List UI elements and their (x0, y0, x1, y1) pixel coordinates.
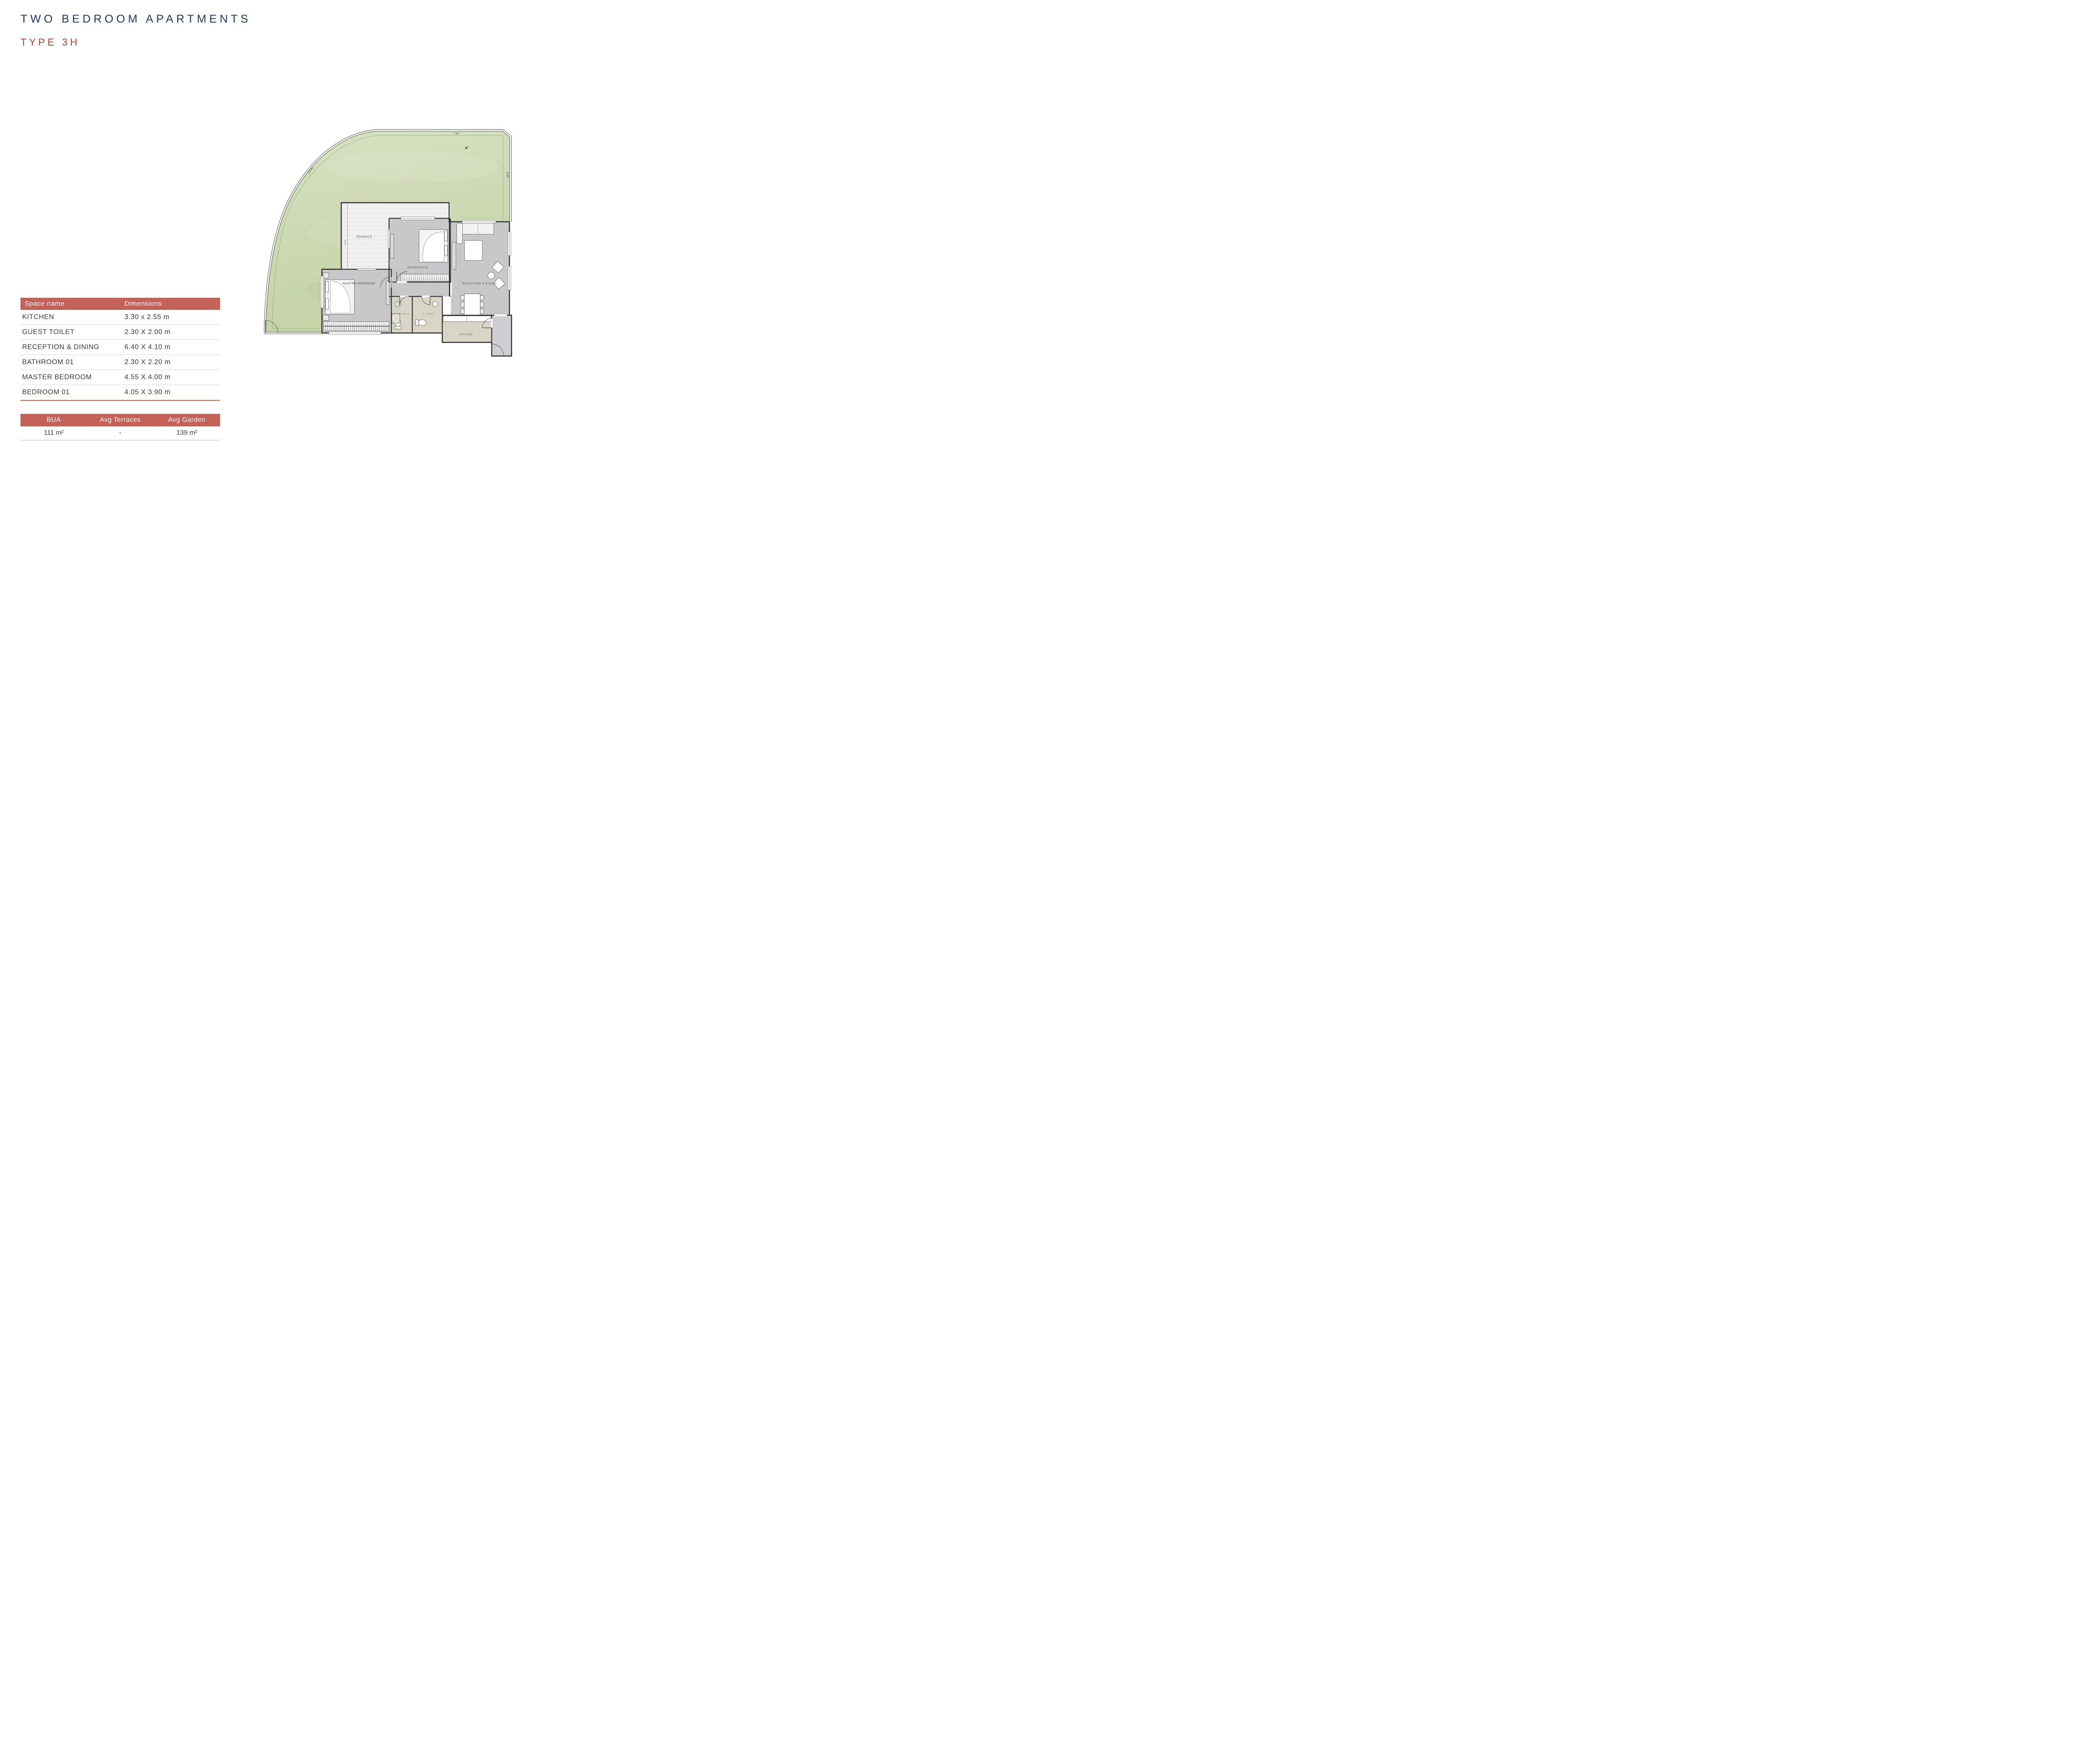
kitchen-counter (443, 316, 491, 322)
header-avg-garden: Avg Garden (154, 416, 220, 424)
table-row: BATHROOM 01 2.30 X 2.20 m (20, 355, 220, 370)
space-name-cell: BEDROOM 01 (20, 388, 124, 396)
space-name-cell: BATHROOM 01 (20, 358, 124, 366)
garden-top-dimension: 7.10 (454, 132, 459, 135)
space-name-cell: RECEPTION & DINING (20, 343, 124, 351)
master-nightstand (323, 315, 329, 321)
bedroom01-label: BEDROOM 01 (408, 266, 428, 269)
page-title: TWO BEDROOM APARTMENTS (20, 13, 251, 25)
bedroom01-bed (419, 230, 448, 263)
floor-plan: 7.10 14.45 8.64 (256, 120, 522, 386)
guest-toilet-label: G. TOILET (423, 312, 434, 314)
kitchen-label: KITCHEN (460, 333, 473, 336)
dimensions-cell: 4.05 X 3.90 m (124, 388, 220, 396)
space-name-cell: KITCHEN (20, 313, 124, 321)
bedroom01-tv-console (390, 234, 394, 259)
dimensions-cell: 2.30 X 2.20 m (124, 358, 220, 366)
room-hall (389, 282, 451, 296)
table-row: GUEST TOILET 2.30 X 2.00 m (20, 325, 220, 340)
terrace-depth-dimension: 4.19 (344, 241, 347, 245)
bedroom01-wardrobe (401, 274, 449, 281)
dimensions-table: Space name Dimensions KITCHEN 3.30 x 2.5… (20, 298, 220, 401)
entry-corridor (492, 315, 512, 356)
garden-right-dimension: 8.64 (506, 172, 509, 178)
space-name-cell: MASTER BEDROOM (20, 373, 124, 381)
master-tv-console (386, 281, 390, 305)
avg-terraces-value: - (87, 429, 153, 437)
table-row: BEDROOM 01 4.05 X 3.90 m (20, 385, 220, 400)
summary-values-row: 111 m² - 139 m² (20, 426, 220, 440)
summary-bottom-line (20, 440, 220, 441)
summary-table: BUA Avg Terraces Avg Garden 111 m² - 139… (20, 414, 220, 441)
dimensions-table-header: Space name Dimensions (20, 298, 220, 310)
header-dimensions: Dimensions (124, 300, 220, 308)
table-accent-underline (20, 400, 220, 401)
table-row: KITCHEN 3.30 x 2.55 m (20, 310, 220, 325)
brochure-page: TWO BEDROOM APARTMENTS TYPE 3H Space nam… (0, 0, 566, 441)
master-nightstand (323, 273, 329, 279)
reception-tv-console (452, 242, 456, 269)
master-wardrobe (324, 322, 390, 331)
floor-plan-drawing: 7.10 14.45 8.64 (256, 120, 522, 386)
reception-dining-label: RECEPTION & DINING (463, 282, 497, 285)
dining-table (461, 294, 484, 315)
table-row: MASTER BEDROOM 4.55 X 4.00 m (20, 370, 220, 385)
bua-value: 111 m² (20, 429, 87, 437)
space-name-cell: GUEST TOILET (20, 328, 124, 336)
dimensions-cell: 4.55 X 4.00 m (124, 373, 220, 381)
avg-garden-value: 139 m² (154, 429, 220, 437)
summary-table-header: BUA Avg Terraces Avg Garden (20, 414, 220, 426)
header-space-name: Space name (20, 300, 124, 308)
dimensions-cell: 2.30 X 2.00 m (124, 328, 220, 336)
header-avg-terraces: Avg Terraces (87, 416, 153, 424)
master-bedroom-label: MASTER BEDROOM (343, 282, 375, 285)
room-guest-toilet (412, 297, 442, 333)
dimensions-cell: 6.40 X 4.10 m (124, 343, 220, 351)
dimensions-cell: 3.30 x 2.55 m (124, 313, 220, 321)
terrace-label: TERRACE (356, 236, 372, 239)
header-bua: BUA (20, 416, 87, 424)
page-subtitle: TYPE 3H (20, 37, 80, 48)
table-row: RECEPTION & DINING 6.40 X 4.10 m (20, 340, 220, 355)
reception-coffee-table (464, 241, 482, 261)
bathroom-label: BATHROOM 01 (394, 312, 410, 314)
